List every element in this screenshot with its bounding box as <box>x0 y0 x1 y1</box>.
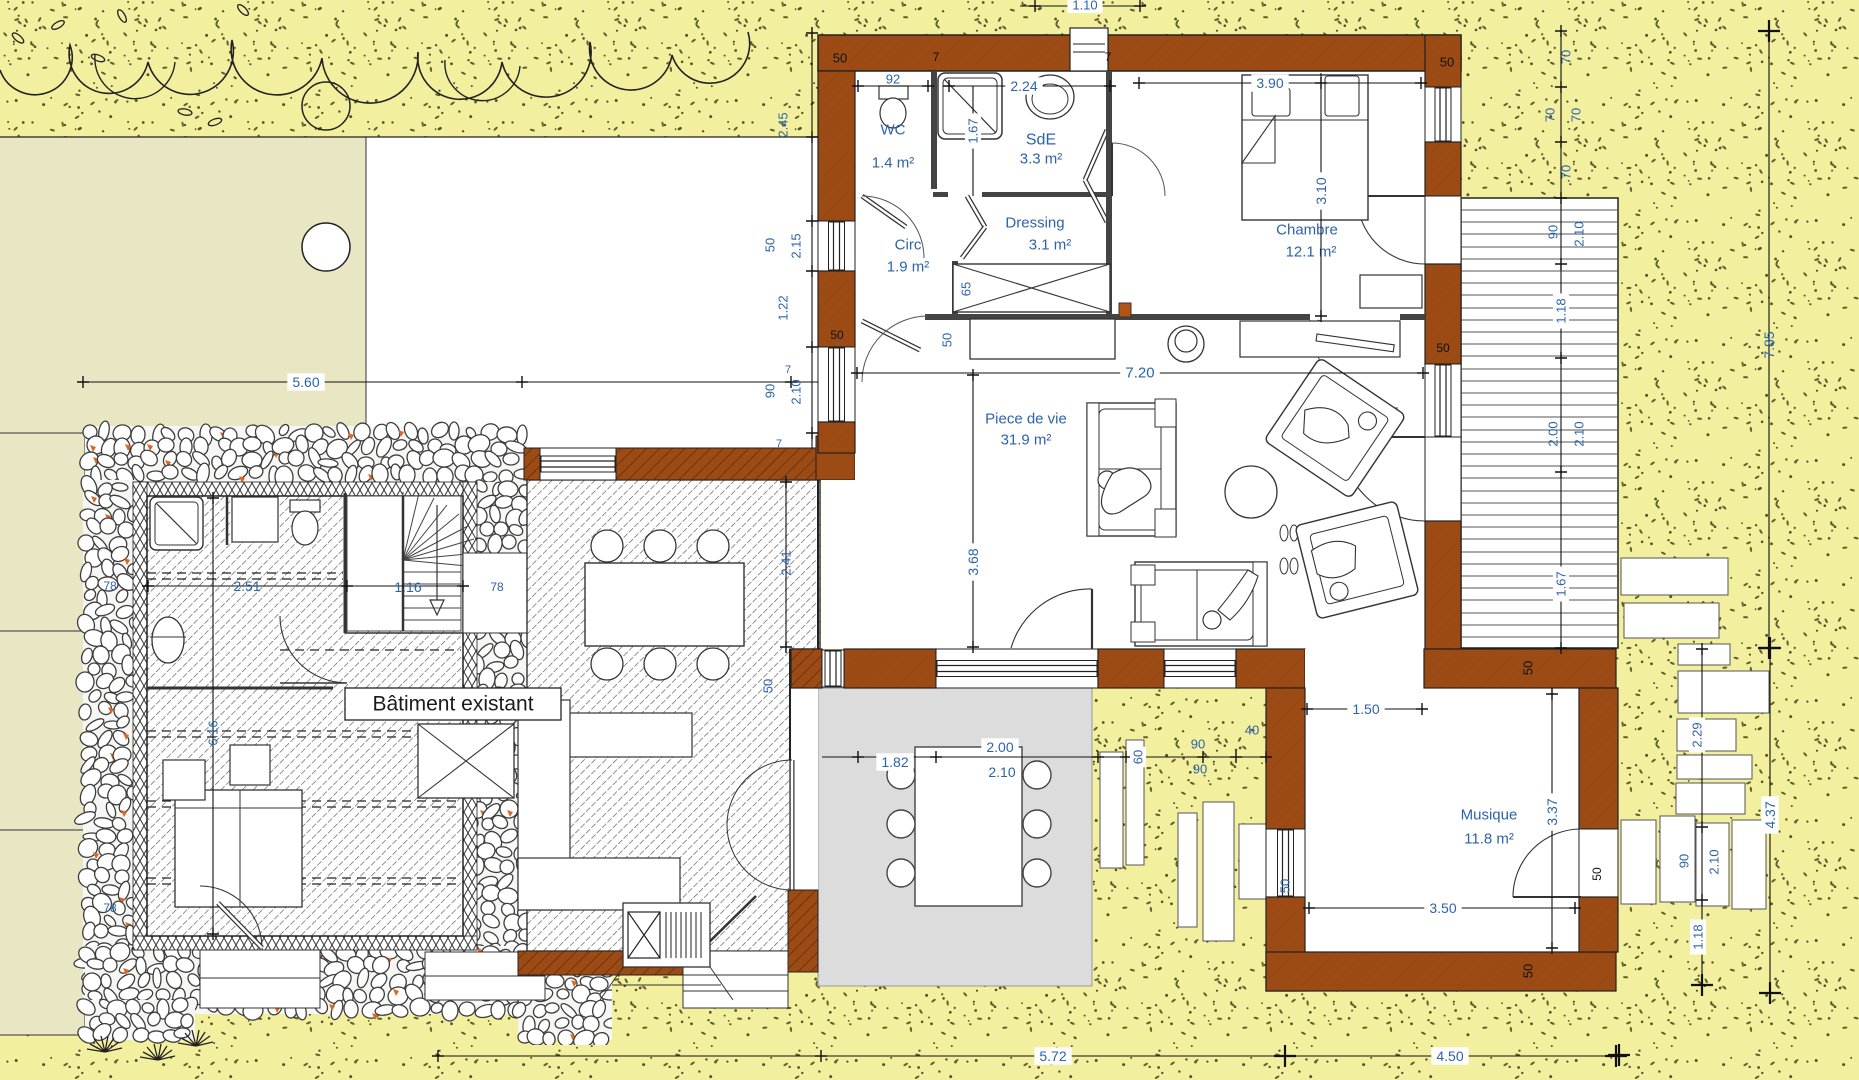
svg-text:11.8 m²: 11.8 m² <box>1464 831 1514 848</box>
svg-text:1.22: 1.22 <box>776 295 791 320</box>
svg-text:78: 78 <box>490 580 504 594</box>
svg-text:2.10: 2.10 <box>988 764 1015 780</box>
svg-text:70: 70 <box>1559 165 1574 179</box>
svg-text:78: 78 <box>103 579 117 593</box>
svg-text:90: 90 <box>1191 737 1205 752</box>
svg-text:1.67: 1.67 <box>1554 571 1569 596</box>
svg-text:2.10: 2.10 <box>1707 849 1722 874</box>
svg-text:Chambre: Chambre <box>1276 222 1338 239</box>
svg-text:70: 70 <box>1543 108 1558 122</box>
svg-text:4.37: 4.37 <box>1762 801 1778 828</box>
svg-text:50: 50 <box>833 51 847 66</box>
svg-text:7: 7 <box>785 364 791 376</box>
svg-text:2.00: 2.00 <box>986 739 1013 755</box>
svg-text:2.10: 2.10 <box>1572 421 1587 446</box>
svg-text:2.15: 2.15 <box>789 233 804 258</box>
svg-text:65: 65 <box>959 282 974 296</box>
svg-text:90: 90 <box>1546 225 1561 239</box>
svg-text:50: 50 <box>1436 341 1450 355</box>
svg-text:90: 90 <box>763 384 778 398</box>
svg-text:50: 50 <box>763 238 778 252</box>
svg-text:2.10: 2.10 <box>789 379 804 404</box>
svg-text:3.10: 3.10 <box>1313 177 1329 204</box>
svg-text:1.4 m²: 1.4 m² <box>872 155 915 172</box>
svg-text:5.60: 5.60 <box>292 374 319 390</box>
svg-text:90: 90 <box>1193 762 1207 777</box>
svg-text:31.9 m²: 31.9 m² <box>1001 432 1052 449</box>
svg-text:2.51: 2.51 <box>233 578 260 594</box>
svg-text:50: 50 <box>1521 964 1536 978</box>
svg-text:7.20: 7.20 <box>1125 365 1154 382</box>
svg-text:1.9 m²: 1.9 m² <box>887 259 930 276</box>
svg-text:2.10: 2.10 <box>1572 221 1587 246</box>
svg-text:3.90: 3.90 <box>1256 75 1283 91</box>
svg-text:1.67: 1.67 <box>966 118 981 143</box>
svg-text:70: 70 <box>1559 50 1574 64</box>
svg-text:Circ: Circ <box>895 237 922 254</box>
svg-text:1.50: 1.50 <box>1352 701 1379 717</box>
svg-text:3.3 m²: 3.3 m² <box>1020 151 1063 168</box>
svg-text:6.16: 6.16 <box>206 720 221 745</box>
svg-text:Piece de vie: Piece de vie <box>985 411 1067 428</box>
svg-text:1.18: 1.18 <box>1554 298 1569 323</box>
svg-text:60: 60 <box>1131 750 1146 764</box>
svg-text:1.16: 1.16 <box>394 579 421 595</box>
svg-text:3.68: 3.68 <box>965 548 981 575</box>
svg-text:2.00: 2.00 <box>1546 421 1561 446</box>
svg-text:50: 50 <box>1278 879 1293 893</box>
svg-text:1.82: 1.82 <box>881 754 908 770</box>
svg-text:50: 50 <box>1440 55 1454 70</box>
svg-text:70: 70 <box>1569 108 1584 122</box>
svg-text:2.29: 2.29 <box>1690 722 1705 747</box>
svg-text:50: 50 <box>1521 661 1536 675</box>
svg-text:2.24: 2.24 <box>1010 78 1037 94</box>
svg-text:92: 92 <box>886 72 900 87</box>
svg-text:7: 7 <box>776 438 782 450</box>
svg-text:4.50: 4.50 <box>1436 1048 1463 1064</box>
svg-text:1.18: 1.18 <box>1691 924 1706 949</box>
svg-text:5.72: 5.72 <box>1039 1048 1066 1064</box>
svg-text:7: 7 <box>933 50 940 64</box>
svg-text:12.1 m²: 12.1 m² <box>1286 244 1337 261</box>
svg-text:40: 40 <box>1245 723 1259 738</box>
svg-text:3.1 m²: 3.1 m² <box>1029 237 1072 254</box>
svg-text:7.85: 7.85 <box>1761 331 1777 358</box>
svg-text:SdE: SdE <box>1026 132 1056 149</box>
svg-text:78: 78 <box>103 901 117 915</box>
svg-text:2.41: 2.41 <box>779 550 794 575</box>
svg-text:50: 50 <box>940 333 955 347</box>
svg-text:WC: WC <box>881 122 906 139</box>
svg-text:90: 90 <box>1677 854 1692 868</box>
svg-text:50: 50 <box>761 679 776 693</box>
svg-text:50: 50 <box>1590 867 1604 881</box>
svg-text:7: 7 <box>1105 50 1112 64</box>
svg-text:2.45: 2.45 <box>776 112 791 137</box>
svg-text:Bâtiment existant: Bâtiment existant <box>372 693 533 716</box>
svg-text:3.50: 3.50 <box>1429 900 1456 916</box>
svg-text:1.10: 1.10 <box>1072 0 1097 13</box>
svg-text:3.37: 3.37 <box>1544 798 1560 825</box>
svg-text:Musique: Musique <box>1461 807 1518 824</box>
svg-text:50: 50 <box>830 328 844 342</box>
svg-text:Dressing: Dressing <box>1005 215 1064 232</box>
